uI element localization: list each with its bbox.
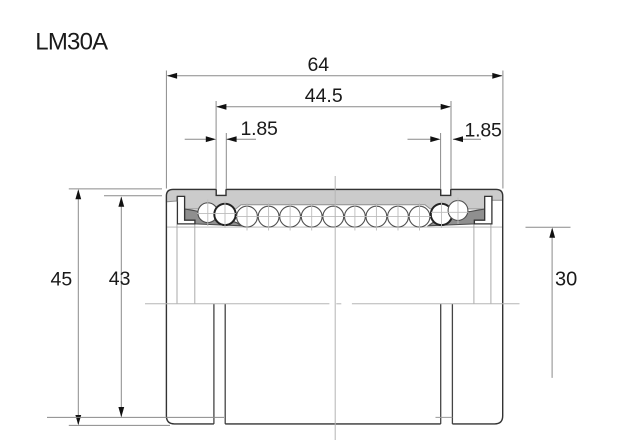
svg-text:LM30A: LM30A [35,29,108,56]
svg-text:1.85: 1.85 [465,120,503,142]
svg-text:44.5: 44.5 [305,85,343,107]
svg-text:43: 43 [109,268,131,290]
svg-text:30: 30 [555,269,577,291]
svg-text:45: 45 [51,269,73,291]
svg-text:64: 64 [307,54,329,76]
svg-text:1.85: 1.85 [241,118,279,140]
